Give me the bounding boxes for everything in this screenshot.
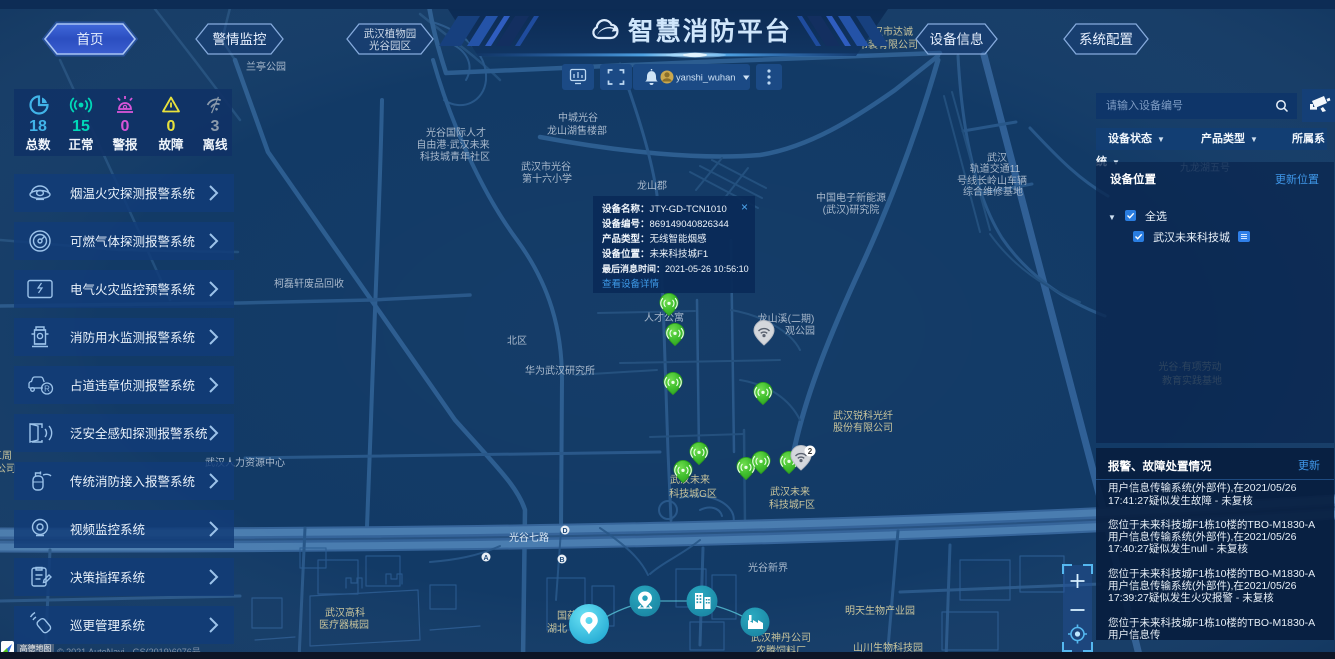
svg-text:设备信息: 设备信息 — [930, 31, 984, 47]
svg-text:明天生物产业园: 明天生物产业园 — [845, 604, 915, 617]
svg-text:R: R — [44, 385, 50, 394]
svg-text:龙山湖售楼部: 龙山湖售楼部 — [547, 124, 607, 137]
svg-text:柯磊轩废品回收: 柯磊轩废品回收 — [274, 277, 344, 290]
svg-text:总数: 总数 — [25, 137, 51, 152]
svg-text:人才公寓: 人才公寓 — [644, 311, 684, 324]
svg-text:警情监控: 警情监控 — [213, 32, 267, 47]
svg-text:轨道交通11: 轨道交通11 — [970, 162, 1021, 175]
svg-text:泛安全感知探测报警系统: 泛安全感知探测报警系统 — [70, 426, 208, 441]
svg-text:股份有限公司: 股份有限公司 — [833, 421, 893, 434]
svg-text:传统消防接入报警系统: 传统消防接入报警系统 — [70, 474, 195, 489]
svg-text:综合维修基地: 综合维修基地 — [963, 185, 1023, 198]
svg-text:武汉市光谷: 武汉市光谷 — [521, 160, 571, 173]
svg-text:科技城青年社区: 科技城青年社区 — [420, 150, 490, 163]
svg-text:警报: 警报 — [111, 137, 138, 152]
svg-text:0: 0 — [121, 118, 130, 135]
svg-text:龙山郡: 龙山郡 — [637, 179, 667, 192]
svg-text:0: 0 — [167, 118, 176, 135]
svg-text:电气火灾监控预警系统: 电气火灾监控预警系统 — [70, 282, 195, 297]
svg-text:yanshi_wuhan: yanshi_wuhan — [676, 73, 735, 83]
svg-text:消防用水监测报警系统: 消防用水监测报警系统 — [70, 330, 195, 345]
svg-text:首页: 首页 — [77, 32, 104, 47]
svg-text:视频监控系统: 视频监控系统 — [70, 522, 145, 537]
svg-text:科技城F区: 科技城F区 — [769, 498, 815, 511]
svg-text:15: 15 — [72, 118, 90, 135]
svg-text:湖北: 湖北 — [547, 623, 567, 635]
svg-text:武汉: 武汉 — [987, 151, 1007, 164]
svg-text:光谷七路: 光谷七路 — [509, 531, 549, 544]
svg-text:D: D — [562, 528, 567, 535]
svg-text:自由港·武汉未来: 自由港·武汉未来 — [416, 138, 489, 151]
svg-text:离线: 离线 — [202, 137, 228, 152]
svg-text:占道违章侦测报警系统: 占道违章侦测报警系统 — [70, 378, 195, 393]
svg-text:武汉未来: 武汉未来 — [770, 485, 810, 498]
svg-text:决策指挥系统: 决策指挥系统 — [70, 570, 145, 585]
svg-text:18: 18 — [29, 118, 47, 135]
svg-text:B: B — [559, 557, 564, 564]
svg-text:观公园: 观公园 — [785, 325, 815, 337]
svg-text:2: 2 — [808, 447, 813, 456]
svg-text:系统配置: 系统配置 — [1079, 32, 1133, 47]
svg-text:正常: 正常 — [68, 137, 93, 152]
svg-text:武汉植物园: 武汉植物园 — [364, 27, 417, 40]
svg-text:烟温火灾探测报警系统: 烟温火灾探测报警系统 — [70, 186, 195, 201]
svg-text:中城光谷: 中城光谷 — [558, 111, 598, 124]
svg-text:号线长岭山车辆: 号线长岭山车辆 — [957, 174, 1027, 187]
svg-text:第十六小学: 第十六小学 — [522, 172, 572, 185]
svg-text:3: 3 — [211, 118, 220, 135]
svg-text:医疗器械园: 医疗器械园 — [319, 618, 369, 631]
svg-text:光谷国际人才: 光谷国际人才 — [426, 126, 486, 139]
svg-text:智慧消防平台: 智慧消防平台 — [628, 17, 792, 46]
svg-text:三周: 三周 — [0, 450, 12, 462]
svg-text:故障: 故障 — [158, 137, 184, 152]
svg-text:光谷园区: 光谷园区 — [369, 39, 411, 52]
svg-text:光谷新界: 光谷新界 — [748, 561, 788, 574]
svg-text:科技城G区: 科技城G区 — [669, 487, 717, 500]
svg-text:武汉锐科光纤: 武汉锐科光纤 — [833, 409, 893, 422]
svg-text:可燃气体探测报警系统: 可燃气体探测报警系统 — [70, 234, 195, 249]
svg-text:(武汉)研究院: (武汉)研究院 — [823, 203, 880, 216]
svg-text:巡更管理系统: 巡更管理系统 — [70, 618, 145, 633]
svg-text:北区: 北区 — [507, 335, 527, 347]
svg-text:中国电子新能源: 中国电子新能源 — [816, 191, 886, 204]
svg-text:武汉高科: 武汉高科 — [325, 606, 365, 619]
svg-text:A: A — [483, 555, 488, 562]
svg-text:华为武汉研究所: 华为武汉研究所 — [525, 364, 595, 377]
